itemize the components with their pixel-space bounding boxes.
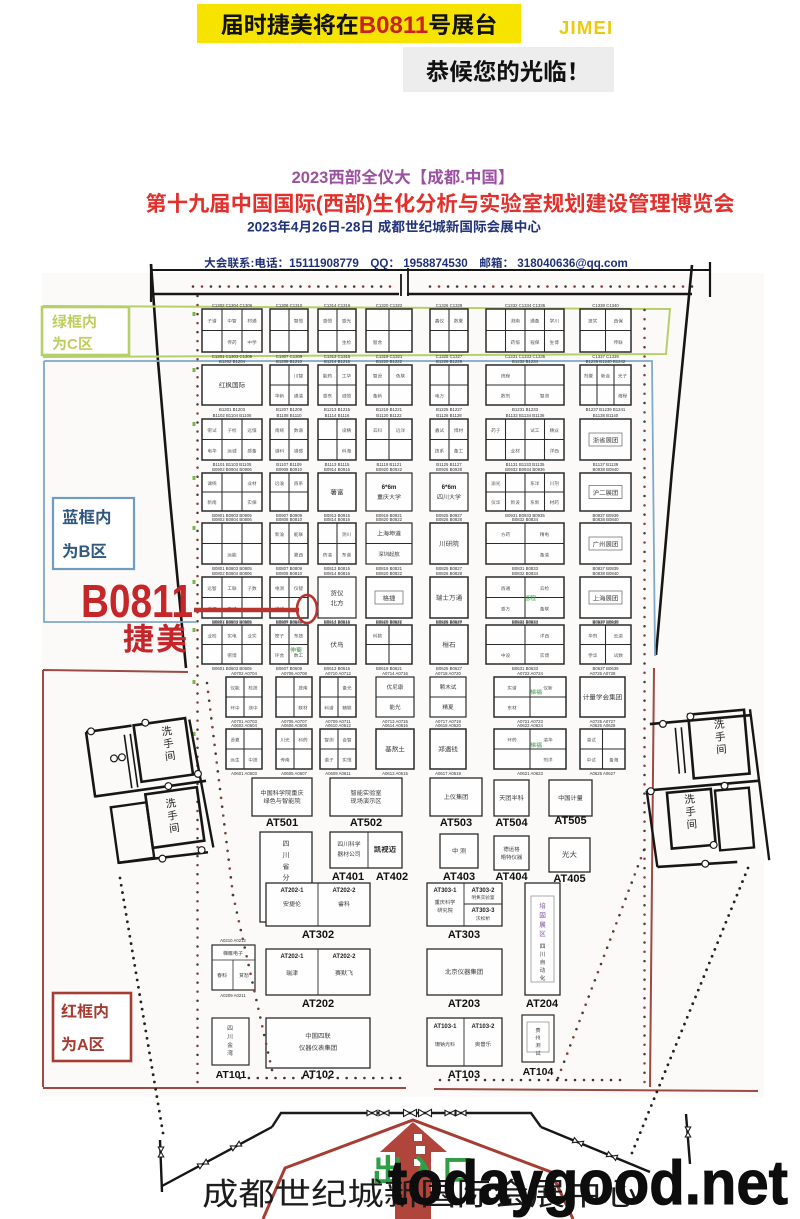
svg-text:上海展团: 上海展团 — [593, 594, 619, 603]
svg-text:大会联系:电话：15111908779 QQ： 195887: 大会联系:电话：15111908779 QQ： 1958874530 邮箱： 3… — [204, 255, 628, 271]
svg-text:仪器仪表集团: 仪器仪表集团 — [299, 1043, 337, 1052]
svg-text:备联: 备联 — [540, 606, 550, 612]
svg-text:技系: 技系 — [435, 448, 445, 454]
svg-text:传联: 传联 — [614, 340, 624, 346]
svg-text:A0610 A0612: A0610 A0612 — [325, 723, 351, 728]
svg-text:B0932 B0934 B0936: B0932 B0934 B0936 — [505, 467, 545, 472]
svg-text:西保: 西保 — [614, 318, 624, 324]
svg-text:B1213 B1215: B1213 B1215 — [324, 407, 351, 412]
svg-text:B1126 B1128: B1126 B1128 — [436, 413, 462, 418]
svg-text:B1102 B1104 B1106: B1102 B1104 B1106 — [213, 413, 252, 418]
svg-text:远能: 远能 — [227, 552, 237, 558]
svg-text:能联: 能联 — [294, 532, 304, 538]
svg-text:业实: 业实 — [247, 633, 257, 639]
svg-text:色联: 色联 — [396, 374, 406, 380]
svg-text:AT303: AT303 — [448, 929, 480, 941]
svg-text:州: 州 — [535, 1035, 540, 1042]
svg-text:川: 川 — [540, 950, 546, 958]
svg-text:环合: 环合 — [275, 653, 285, 659]
svg-text:A0714 A0716: A0714 A0716 — [382, 671, 408, 676]
svg-text:A0702 A0704: A0702 A0704 — [231, 671, 257, 676]
svg-text:AT204: AT204 — [526, 998, 559, 1010]
svg-text:重庆大学: 重庆大学 — [377, 492, 401, 501]
svg-text:南统: 南统 — [275, 428, 285, 434]
svg-text:B1238 B1240 B1242: B1238 B1240 B1242 — [586, 359, 626, 364]
svg-text:西通: 西通 — [501, 586, 511, 592]
svg-text:电方: 电方 — [435, 394, 445, 400]
svg-text:安捷伦: 安捷伦 — [283, 899, 301, 908]
svg-text:远诚: 远诚 — [227, 448, 237, 454]
svg-text:绿色与智能院: 绿色与智能院 — [263, 796, 300, 805]
svg-text:B1232 B1234: B1232 B1234 — [512, 359, 539, 364]
svg-text:现场演示区: 现场演示区 — [351, 796, 382, 805]
svg-text:仪新: 仪新 — [543, 686, 553, 692]
svg-text:AT101: AT101 — [216, 1069, 247, 1081]
svg-text:中智: 中智 — [227, 318, 237, 324]
svg-text:B0914 B0916: B0914 B0916 — [324, 467, 351, 472]
svg-text:B1138 B1140: B1138 B1140 — [593, 413, 619, 418]
svg-text:自: 自 — [540, 958, 546, 966]
svg-text:智测: 智测 — [324, 738, 334, 744]
svg-text:智测: 智测 — [540, 394, 550, 400]
svg-text:上仪集团: 上仪集团 — [444, 792, 469, 801]
svg-text:感光: 感光 — [342, 318, 352, 324]
svg-text:A0602 A0604: A0602 A0604 — [231, 723, 257, 728]
svg-text:子数: 子数 — [247, 586, 257, 592]
svg-text:科谱: 科谱 — [324, 706, 334, 712]
svg-text:B1220 B1222: B1220 B1222 — [376, 359, 403, 364]
svg-text:A0718 A0720: A0718 A0720 — [435, 671, 461, 676]
svg-text:川剂: 川剂 — [550, 481, 560, 487]
svg-text:A0613 A0615: A0613 A0615 — [382, 771, 408, 776]
svg-text:川智: 川智 — [294, 374, 304, 380]
svg-text:实恒: 实恒 — [342, 758, 352, 764]
svg-text:科药: 科药 — [298, 738, 308, 744]
svg-text:中国四联: 中国四联 — [305, 1031, 331, 1040]
svg-text:贫愁: 贫愁 — [239, 972, 249, 979]
svg-text:间: 间 — [164, 748, 176, 764]
svg-text:AT303-3: AT303-3 — [472, 908, 496, 914]
svg-text:数谱: 数谱 — [294, 428, 304, 434]
svg-text:恭候您的光临！: 恭候您的光临！ — [426, 53, 591, 87]
svg-text:生检: 生检 — [342, 340, 352, 346]
svg-text:方药: 方药 — [501, 532, 511, 538]
svg-text:B0638 B0640: B0638 B0640 — [592, 619, 619, 624]
svg-text:实保: 实保 — [247, 500, 257, 506]
svg-text:薯富: 薯富 — [330, 486, 344, 496]
svg-text:B0838 B0840: B0838 B0840 — [592, 517, 619, 522]
svg-text:联材: 联材 — [298, 706, 308, 712]
svg-text:为B区: 为B区 — [62, 538, 107, 562]
svg-text:蓝框内: 蓝框内 — [62, 504, 112, 528]
svg-text:瑞士万通: 瑞士万通 — [436, 592, 463, 602]
svg-text:渝光: 渝光 — [491, 481, 501, 487]
svg-text:间: 间 — [715, 741, 727, 757]
svg-text:红框内: 红框内 — [61, 998, 109, 1022]
svg-text:备光: 备光 — [342, 686, 352, 692]
svg-text:测川: 测川 — [342, 532, 352, 538]
svg-text:试数: 试数 — [614, 653, 624, 659]
svg-text:药子: 药子 — [491, 428, 501, 434]
svg-text:东谱: 东谱 — [342, 552, 352, 558]
svg-text:四: 四 — [540, 942, 546, 950]
svg-text:洋西: 洋西 — [550, 448, 560, 454]
svg-text:浙省展团: 浙省展团 — [593, 436, 619, 445]
svg-text:智恒: 智恒 — [294, 318, 304, 324]
svg-text:中学: 中学 — [247, 340, 257, 346]
svg-text:中国计量: 中国计量 — [558, 793, 583, 802]
svg-text:动: 动 — [540, 966, 546, 974]
svg-text:中技: 中技 — [248, 758, 258, 764]
svg-text:远生: 远生 — [230, 758, 240, 764]
svg-text:伏鸟: 伏鸟 — [330, 639, 344, 649]
svg-text:华剂: 华剂 — [588, 633, 598, 639]
svg-text:业检: 业检 — [207, 633, 217, 639]
svg-text:AT103-2: AT103-2 — [472, 1024, 496, 1030]
svg-text:新南: 新南 — [207, 500, 217, 506]
svg-text:中试: 中试 — [587, 758, 597, 764]
svg-text:通备: 通备 — [530, 318, 540, 324]
svg-text:AT402: AT402 — [376, 871, 408, 883]
svg-text:中设: 中设 — [501, 653, 511, 659]
svg-text:传南: 传南 — [280, 758, 290, 764]
svg-text:药渝: 药渝 — [323, 552, 333, 558]
svg-text:todaygood.net: todaygood.net — [388, 1149, 788, 1218]
svg-text:诚恒: 诚恒 — [342, 394, 352, 400]
svg-text:工联: 工联 — [227, 586, 237, 592]
svg-text:B0802 B0804 B0806: B0802 B0804 B0806 — [212, 571, 252, 576]
svg-text:睿科: 睿科 — [338, 899, 350, 908]
svg-text:研究院: 研究院 — [437, 907, 453, 914]
svg-text:C1338 C1340: C1338 C1340 — [592, 303, 619, 308]
svg-text:AT303-2: AT303-2 — [472, 888, 496, 894]
svg-text:B1219 B1221: B1219 B1221 — [376, 407, 403, 412]
svg-text:春科: 春科 — [217, 972, 227, 979]
svg-text:工华: 工华 — [342, 374, 352, 380]
svg-text:远智: 远智 — [207, 586, 217, 592]
svg-text:鑫试: 鑫试 — [435, 428, 445, 434]
svg-text:程保: 程保 — [530, 340, 540, 346]
svg-text:新合: 新合 — [601, 374, 611, 380]
svg-text:试: 试 — [535, 1050, 541, 1057]
svg-text:A0622 A0624: A0622 A0624 — [517, 723, 543, 728]
svg-text:仪智: 仪智 — [294, 586, 304, 592]
svg-text:B0602 B0604 B0606: B0602 B0604 B0606 — [212, 619, 252, 624]
svg-text:谱科: 谱科 — [275, 448, 285, 454]
svg-text:B0832 B0834: B0832 B0834 — [512, 571, 539, 576]
svg-text:B0938 B0940: B0938 B0940 — [592, 467, 619, 472]
svg-text:科数: 科数 — [373, 633, 383, 639]
svg-text:云渝: 云渝 — [614, 633, 624, 639]
svg-text:密子: 密子 — [275, 633, 285, 639]
svg-text:智合: 智合 — [373, 340, 383, 346]
svg-text:AT501: AT501 — [266, 817, 298, 829]
svg-text:实电: 实电 — [227, 633, 237, 639]
svg-text:剂夏: 剂夏 — [584, 374, 594, 380]
svg-text:仪华: 仪华 — [491, 500, 501, 506]
svg-text:北京仪器集团: 北京仪器集团 — [445, 967, 483, 976]
svg-text:上海坤道: 上海坤道 — [377, 528, 401, 537]
svg-text:感东: 感东 — [323, 394, 333, 400]
svg-text:渝试: 渝试 — [587, 738, 597, 744]
svg-text:C1320 C1322: C1320 C1322 — [376, 303, 403, 308]
svg-text:谱子: 谱子 — [324, 758, 334, 764]
svg-text:B1120 B1122: B1120 B1122 — [376, 413, 402, 418]
svg-text:AT203: AT203 — [448, 998, 480, 1010]
svg-text:材药: 材药 — [550, 500, 560, 506]
svg-text:间: 间 — [686, 816, 698, 832]
svg-text:数剂: 数剂 — [501, 394, 511, 400]
svg-text:设夏: 设夏 — [230, 738, 240, 744]
svg-text:B0808 B0810: B0808 B0810 — [276, 571, 303, 576]
svg-text:AT202: AT202 — [302, 998, 334, 1010]
svg-text:A0625 A0627: A0625 A0627 — [590, 771, 616, 776]
svg-text:业材: 业材 — [511, 448, 521, 454]
svg-text:设精: 设精 — [342, 428, 352, 434]
svg-text:B0820 B0822: B0820 B0822 — [376, 517, 403, 522]
svg-text:生博: 生博 — [550, 340, 560, 346]
svg-text:北方: 北方 — [330, 598, 344, 608]
svg-text:备渝: 备渝 — [540, 552, 550, 558]
svg-text:AT202-1: AT202-1 — [281, 888, 305, 894]
svg-text:测南: 测南 — [511, 318, 521, 324]
svg-text:业材: 业材 — [247, 481, 257, 487]
svg-text:B1231 B1233: B1231 B1233 — [512, 407, 539, 412]
svg-text:A0606 A0608: A0606 A0608 — [281, 723, 307, 728]
svg-text:东洋: 东洋 — [530, 481, 540, 487]
svg-text:环中: 环中 — [230, 706, 240, 712]
svg-text:B1208 B1210: B1208 B1210 — [276, 359, 303, 364]
svg-text:B1226 B1228: B1226 B1228 — [436, 359, 463, 364]
svg-text:密博: 密博 — [227, 653, 237, 659]
svg-text:药恒: 药恒 — [511, 340, 521, 346]
svg-text:A0621 A0623: A0621 A0623 — [517, 771, 543, 776]
svg-text:桓石: 桓石 — [442, 639, 456, 649]
svg-text:实博: 实博 — [540, 653, 550, 659]
svg-text:B0908 B0910: B0908 B0910 — [276, 467, 303, 472]
svg-text:中 测: 中 测 — [452, 846, 466, 855]
svg-text:C1332 C1334 C1336: C1332 C1334 C1336 — [505, 303, 546, 308]
svg-text:A0601 A0603: A0601 A0603 — [231, 771, 257, 776]
svg-text:四川大学: 四川大学 — [437, 492, 461, 501]
svg-text:合智: 合智 — [342, 738, 352, 744]
svg-text:凯视迈: 凯视迈 — [374, 844, 397, 855]
svg-text:第十九届中国国际(西部)生化分析与实验室规划建设管理博览会: 第十九届中国国际(西部)生化分析与实验室规划建设管理博览会 — [145, 187, 734, 218]
svg-text:材通: 材通 — [247, 318, 257, 324]
svg-text:渝华: 渝华 — [543, 738, 553, 744]
svg-text:B1114 B1116: B1114 B1116 — [325, 413, 350, 418]
svg-text:晤特仪器: 晤特仪器 — [501, 853, 523, 861]
svg-text:B0902 B0904 B0906: B0902 B0904 B0906 — [212, 467, 252, 472]
svg-text:广州展团: 广州展团 — [593, 540, 619, 549]
svg-text:AT401: AT401 — [332, 871, 364, 883]
svg-text:瑞津: 瑞津 — [286, 968, 298, 977]
svg-text:远洋: 远洋 — [396, 428, 406, 434]
svg-text:备工: 备工 — [454, 448, 464, 454]
svg-text:2023年4月26日-28日 成都世纪城新国际会展中心: 2023年4月26日-28日 成都世纪城新国际会展中心 — [247, 216, 541, 236]
svg-text:C1308 C1310: C1308 C1310 — [276, 303, 303, 308]
svg-text:夏西: 夏西 — [294, 552, 304, 558]
svg-text:诚统: 诚统 — [207, 481, 217, 487]
svg-text:梯福: 梯福 — [530, 687, 542, 696]
svg-text:B1207 B1209: B1207 B1209 — [276, 407, 303, 412]
svg-text:学华: 学华 — [588, 653, 598, 659]
svg-text:B0832 B0834: B0832 B0834 — [512, 517, 539, 522]
svg-text:测中: 测中 — [248, 706, 258, 712]
svg-text:沪二展团: 沪二展团 — [593, 488, 619, 497]
svg-text:绿框内: 绿框内 — [52, 311, 97, 332]
svg-text:AT104: AT104 — [523, 1066, 554, 1078]
svg-text:电华: 电华 — [207, 448, 217, 454]
svg-text:省: 省 — [283, 862, 290, 872]
svg-text:为A区: 为A区 — [61, 1031, 105, 1055]
svg-text:器材公司: 器材公司 — [337, 849, 360, 858]
svg-text:谱感: 谱感 — [294, 448, 304, 454]
svg-text:德运格: 德运格 — [503, 845, 520, 853]
svg-text:伸蜀: 伸蜀 — [290, 645, 302, 654]
svg-text:为C区: 为C区 — [52, 333, 93, 354]
svg-text:B0838 B0840: B0838 B0840 — [592, 571, 619, 576]
svg-text:区: 区 — [539, 928, 546, 938]
svg-text:捷美: 捷美 — [123, 614, 189, 659]
svg-text:A0617 A0619: A0617 A0619 — [435, 771, 461, 776]
svg-text:A0209 A0211: A0209 A0211 — [220, 993, 246, 998]
svg-text:梯雁电子: 梯雁电子 — [223, 950, 243, 957]
svg-text:A0614 A0616: A0614 A0616 — [382, 723, 408, 728]
svg-text:计量学会集团: 计量学会集团 — [583, 691, 623, 701]
svg-text:感恒: 感恒 — [323, 318, 333, 324]
svg-text:能光: 能光 — [389, 703, 401, 711]
svg-text:备新: 备新 — [373, 394, 383, 400]
svg-text:郑遇钱: 郑遇钱 — [438, 743, 458, 753]
svg-text:化: 化 — [540, 974, 546, 982]
svg-text:川光: 川光 — [280, 738, 290, 744]
svg-text:B1202 B1204: B1202 B1204 — [219, 359, 246, 364]
svg-text:毯程: 毯程 — [524, 593, 536, 602]
svg-text:AT302: AT302 — [302, 929, 334, 941]
svg-text:传药: 传药 — [227, 340, 237, 346]
svg-text:C1326 C1328: C1326 C1328 — [436, 303, 463, 308]
svg-text:红枫国际: 红枫国际 — [219, 379, 246, 389]
svg-text:海程: 海程 — [618, 394, 628, 400]
svg-text:B1214 B1216: B1214 B1216 — [324, 359, 351, 364]
svg-text:东新: 东新 — [530, 500, 540, 506]
svg-text:实谱: 实谱 — [507, 686, 517, 692]
svg-text:B0620 B0622: B0620 B0622 — [376, 619, 403, 624]
svg-text:四: 四 — [283, 839, 290, 849]
svg-text:远恒: 远恒 — [247, 428, 257, 434]
svg-text:博材: 博材 — [454, 428, 464, 434]
svg-text:天团半科: 天团半科 — [499, 793, 524, 802]
svg-text:湾: 湾 — [227, 1048, 233, 1057]
svg-text:B0820 B0822: B0820 B0822 — [376, 571, 403, 576]
svg-text:A0618 A0620: A0618 A0620 — [435, 723, 461, 728]
svg-text:AT502: AT502 — [350, 817, 382, 829]
svg-text:科海: 科海 — [342, 448, 352, 454]
svg-text:B1201 B1203: B1201 B1203 — [219, 407, 246, 412]
svg-text:B0814 B0816: B0814 B0816 — [324, 517, 351, 522]
svg-text:颗木试: 颗木试 — [440, 683, 457, 691]
svg-text:分: 分 — [283, 873, 290, 883]
svg-text:赛默飞: 赛默飞 — [335, 968, 353, 977]
svg-text:AT504: AT504 — [495, 817, 528, 829]
svg-text:感方: 感方 — [501, 606, 511, 612]
svg-text:B0926 B0928: B0926 B0928 — [436, 467, 463, 472]
svg-text:华新: 华新 — [275, 394, 285, 400]
svg-text:AT202-2: AT202-2 — [333, 888, 357, 894]
svg-text:B0626 B0628: B0626 B0628 — [436, 619, 463, 624]
svg-text:珊钠光科: 珊钠光科 — [435, 1041, 455, 1048]
svg-text:远渝: 远渝 — [275, 481, 285, 487]
svg-text:AT303-1: AT303-1 — [434, 888, 458, 894]
svg-text:B0814 B0816: B0814 B0816 — [324, 571, 351, 576]
svg-text:光子: 光子 — [618, 374, 628, 380]
svg-text:通渝: 通渝 — [294, 394, 304, 400]
svg-text:2023西部全仪大【成都.中国】: 2023西部全仪大【成都.中国】 — [292, 164, 515, 188]
svg-text:货仪: 货仪 — [330, 588, 344, 598]
svg-text:奥普乐: 奥普乐 — [475, 1040, 492, 1048]
svg-text:A0626 A0628: A0626 A0628 — [590, 723, 616, 728]
svg-text:B1237 B1239 B1241: B1237 B1239 B1241 — [586, 407, 626, 412]
svg-text:统程: 统程 — [501, 374, 511, 380]
svg-text:光大: 光大 — [562, 849, 577, 860]
svg-text:A0605 A0607: A0605 A0607 — [281, 771, 307, 776]
svg-text:川研院: 川研院 — [439, 538, 459, 548]
svg-text:AT202-2: AT202-2 — [333, 954, 357, 960]
svg-text:B0808 B0810: B0808 B0810 — [276, 517, 303, 522]
svg-text:东技: 东技 — [294, 633, 304, 639]
svg-text:电测: 电测 — [275, 586, 285, 592]
svg-text:新渝: 新渝 — [275, 532, 285, 538]
svg-text:云科: 云科 — [373, 428, 383, 434]
svg-text:试工: 试工 — [530, 428, 540, 434]
svg-text:B1225 B1227: B1225 B1227 — [436, 407, 463, 412]
svg-text:技南: 技南 — [298, 686, 308, 692]
svg-text:6*6m: 6*6m — [442, 484, 457, 491]
svg-text:贵: 贵 — [535, 1027, 540, 1034]
svg-text:精业: 精业 — [550, 428, 560, 434]
svg-text:AT103-1: AT103-1 — [434, 1024, 458, 1030]
svg-text:C1314 C1316: C1314 C1316 — [324, 303, 351, 308]
svg-text:C1302 C1304 C1306: C1302 C1304 C1306 — [212, 303, 253, 308]
svg-text:B0920 B0922: B0920 B0922 — [376, 467, 403, 472]
svg-text:优尼康: 优尼康 — [387, 683, 404, 691]
svg-text:数夏: 数夏 — [454, 318, 464, 324]
svg-text:B0802 B0804 B0806: B0802 B0804 B0806 — [212, 517, 252, 522]
svg-text:B0608 B0610: B0608 B0610 — [276, 619, 303, 624]
svg-text:AT503: AT503 — [440, 817, 472, 829]
svg-text:B0614 B0616: B0614 B0616 — [324, 619, 351, 624]
svg-text:能药: 能药 — [323, 374, 333, 380]
svg-text:AT404: AT404 — [495, 871, 528, 883]
svg-text:备海: 备海 — [609, 758, 619, 764]
svg-text:子检: 子检 — [227, 428, 237, 434]
svg-text:学川: 学川 — [550, 318, 560, 324]
svg-text:剂洋: 剂洋 — [543, 758, 553, 764]
svg-text:新设: 新设 — [511, 500, 521, 506]
svg-text:6*6m: 6*6m — [382, 484, 397, 491]
svg-text:智设: 智设 — [373, 374, 383, 380]
svg-text:B0632 B0634: B0632 B0634 — [512, 619, 539, 624]
svg-text:深圳起航: 深圳起航 — [378, 550, 400, 558]
svg-text:东材: 东材 — [507, 706, 517, 712]
svg-text:测: 测 — [535, 1042, 540, 1049]
svg-text:四川科学: 四川科学 — [337, 839, 360, 848]
svg-text:仪能: 仪能 — [230, 686, 240, 692]
svg-text:B1108 B1110: B1108 B1110 — [276, 413, 302, 418]
svg-text:B1132 B1134 B1136: B1132 B1134 B1136 — [506, 413, 545, 418]
svg-text:A0722 A0724: A0722 A0724 — [517, 671, 543, 676]
